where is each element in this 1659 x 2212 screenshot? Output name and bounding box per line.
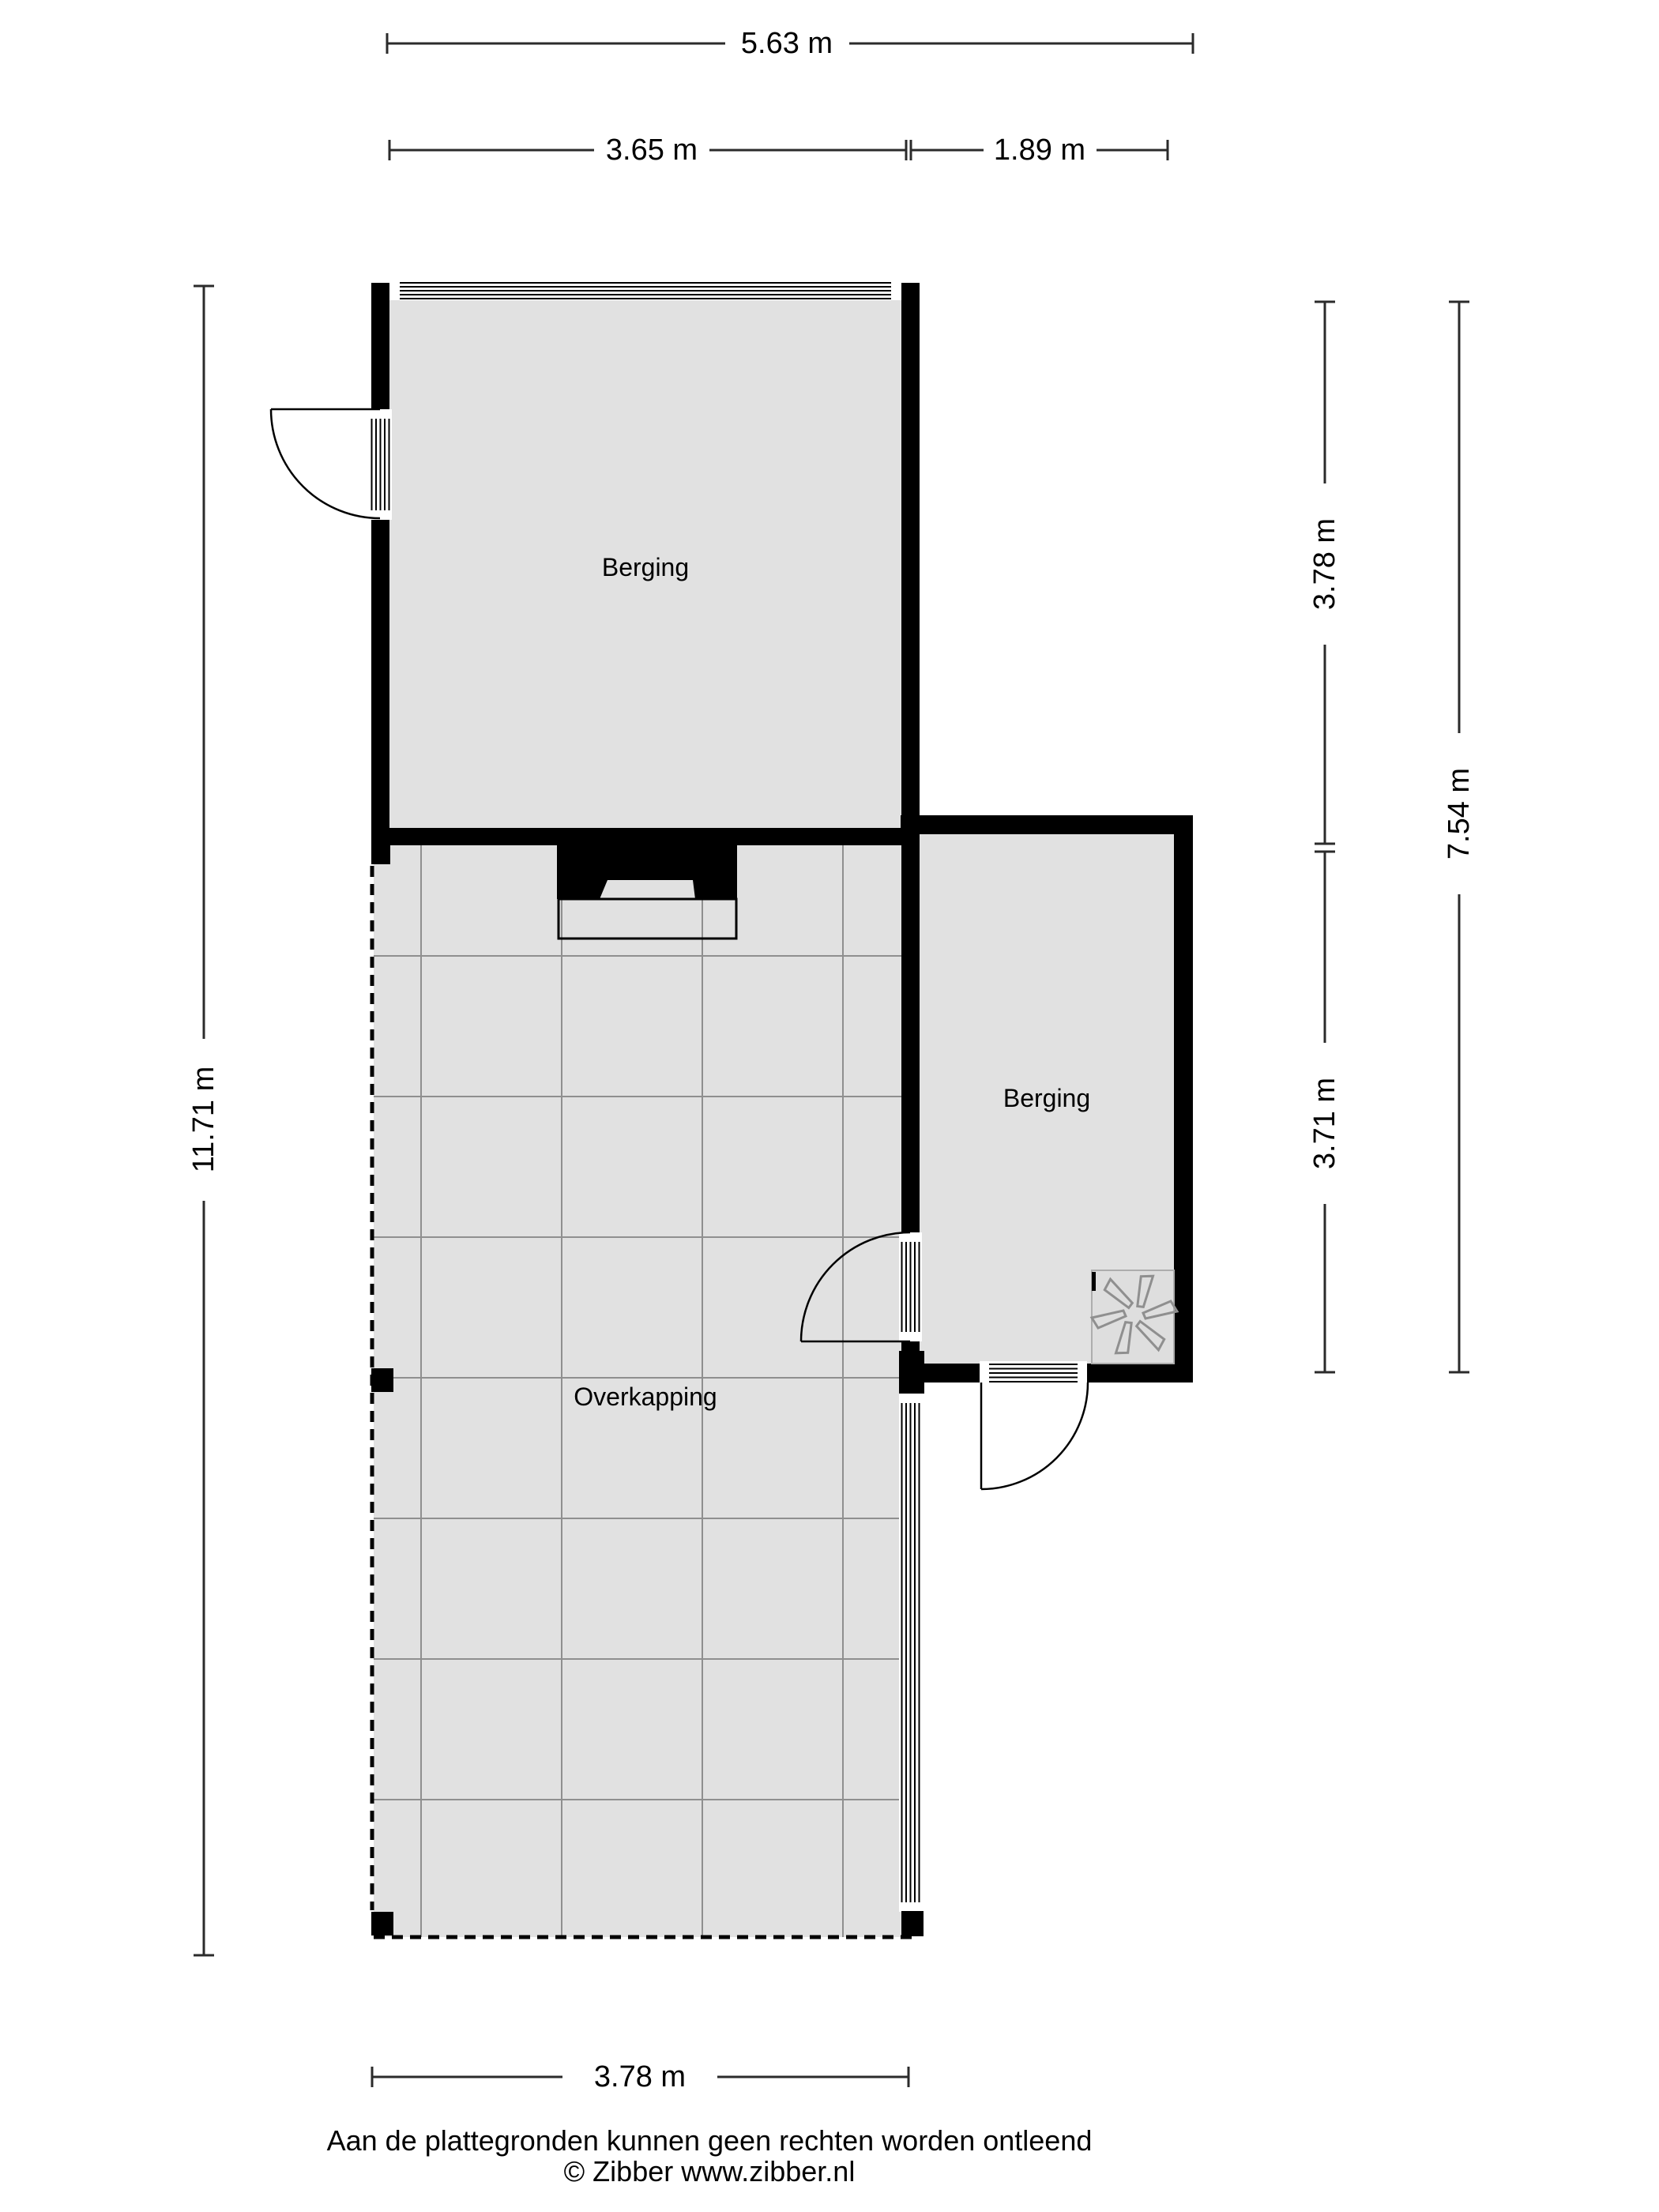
room-label-overkapping: Overkapping: [574, 1382, 717, 1411]
dimension-right-upper: 3.78 m: [1308, 302, 1341, 844]
room-label-berging-2: Berging: [1003, 1084, 1090, 1112]
dimension-label-right-total: 7.54 m: [1443, 768, 1476, 860]
room-label-berging-1: Berging: [602, 553, 689, 581]
dimension-top-right-segment: 1.89 m: [911, 134, 1168, 167]
door-opening-berging-1: [369, 409, 392, 520]
door-berging-2-exterior: [981, 1382, 1088, 1489]
berging-2-top-wall: [901, 815, 1193, 834]
post-bottom-right: [901, 1911, 924, 1936]
ventilation-unit: [1092, 1270, 1177, 1364]
footer-copyright: © Zibber www.zibber.nl: [564, 2155, 856, 2188]
dimension-top-left-segment: 3.65 m: [389, 134, 906, 167]
berging-1-bottom-wall: [371, 828, 920, 845]
post-bottom-left: [371, 1912, 393, 1935]
dimension-label-right-lower: 3.71 m: [1308, 1078, 1341, 1169]
footer-disclaimer: Aan de plattegronden kunnen geen rechten…: [327, 2124, 1093, 2157]
door-opening-berging-2-bottom: [980, 1361, 1087, 1385]
dimension-right-lower: 3.71 m: [1308, 852, 1341, 1372]
window-top-berging-1: [389, 281, 901, 300]
door-berging-1: [271, 409, 380, 518]
door-swing-arc: [981, 1382, 1088, 1489]
dimension-label-left-total: 11.71 m: [187, 1066, 220, 1172]
dimension-left-total: 11.71 m: [187, 286, 220, 1955]
floor-plan-drawing: 5.63 m 3.65 m 1.89 m 11.71 m 3.78 m 3.71…: [0, 0, 1659, 2212]
berging-2-right-wall: [1174, 815, 1193, 1382]
floor-plan-page: 5.63 m 3.65 m 1.89 m 11.71 m 3.78 m 3.71…: [0, 0, 1659, 2212]
post-mid-left: [371, 1368, 393, 1392]
dimension-label-bottom: 3.78 m: [594, 2060, 686, 2093]
dimension-label-top-left: 3.65 m: [606, 134, 698, 167]
door-swing-arc: [271, 409, 380, 518]
dimension-top-total: 5.63 m: [387, 27, 1193, 60]
room-floors: [374, 299, 1174, 1937]
berging-1-right-wall: [901, 283, 920, 844]
post-top-left: [371, 845, 390, 864]
dimension-label-right-upper: 3.78 m: [1308, 518, 1341, 610]
dimension-bottom: 3.78 m: [372, 2060, 908, 2093]
door-opening-berging-2-left: [899, 1232, 922, 1341]
post-berging-2-corner: [899, 1351, 924, 1394]
footer: Aan de plattegronden kunnen geen rechten…: [327, 2124, 1093, 2188]
dimension-label-top-total: 5.63 m: [741, 27, 833, 60]
ventilation-unit-tick: [1092, 1272, 1096, 1291]
berging-1-left-wall: [371, 283, 389, 844]
overkapping-right-edge-strip: [899, 1394, 922, 1912]
dimension-right-total: 7.54 m: [1443, 302, 1476, 1372]
ventilation-unit-box: [1092, 1270, 1174, 1364]
dimension-label-top-right: 1.89 m: [994, 134, 1085, 167]
